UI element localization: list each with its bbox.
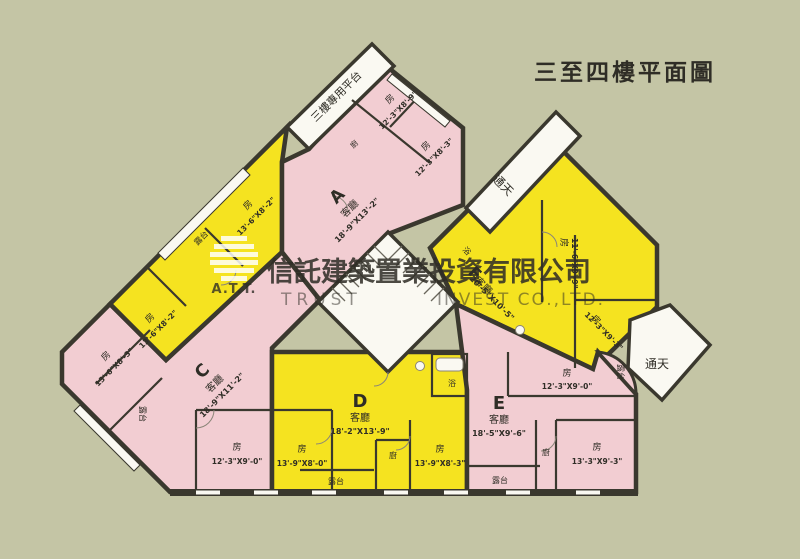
- unit-c-room2-label: 房: [232, 441, 241, 453]
- unit-d-room1-dims: 13'-9"X8'-0": [277, 459, 328, 468]
- company-logo-text: A.T.T.: [212, 282, 257, 297]
- unit-e-room1-label: 房: [562, 367, 571, 379]
- unit-c-room2-dims: 12'-3"X9'-0": [212, 457, 263, 466]
- unit-e-room2-label: 房: [592, 441, 601, 453]
- unit-e-room2-dims: 13'-3"X9'-3": [572, 457, 623, 466]
- unit-d-bath-label: 浴: [448, 378, 456, 388]
- unit-e-living-dims: 18'-5"X9'-6": [472, 429, 526, 438]
- unit-e-balcony-right-label: 露台: [616, 364, 626, 380]
- unit-d-room2-dims: 13'-9"X8'-3": [415, 459, 466, 468]
- unit-e-kitchen-label: 廚: [542, 447, 550, 457]
- unit-e-living-label: 客廳: [489, 413, 509, 426]
- company-name-cn: 信託建築置業投資有限公司: [267, 256, 591, 288]
- unit-d-id: D: [353, 391, 368, 412]
- unit-f-room1-label: 房: [558, 238, 570, 247]
- company-name-en-right: INVEST CO.,LTD.: [437, 290, 605, 310]
- unit-d-balcony-label: 露台: [328, 476, 344, 486]
- unit-c-balcony-label: 露台: [138, 406, 148, 422]
- page-title: 三至四樓平面圖: [534, 60, 716, 86]
- company-name-en-left: TRUST: [280, 290, 362, 310]
- unit-d-living-dims: 18'-2"X13'-9": [330, 427, 389, 436]
- unit-e-id: E: [493, 393, 505, 414]
- bottom-wall: [170, 489, 638, 496]
- unit-d-kitchen-label: 廚: [389, 450, 397, 460]
- unit-d-room2-label: 房: [435, 443, 444, 455]
- unit-e-balcony-left-label: 露台: [492, 475, 508, 485]
- lightwell-bottom-label: 通天: [645, 357, 669, 371]
- unit-d-room1-label: 房: [297, 443, 306, 455]
- unit-e-room1-dims: 12'-3"X9'-0": [542, 382, 593, 391]
- lightwell-bottom-area: [628, 305, 710, 400]
- floor-plan-svg: 三樓專用平台 通天 通天 A 客廳 18'-9"X13'-2" 房 12'-3"…: [0, 0, 800, 559]
- floor-plan-page: 三樓專用平台 通天 通天 A 客廳 18'-9"X13'-2" 房 12'-3"…: [0, 0, 800, 559]
- unit-d-living-label: 客廳: [350, 411, 370, 424]
